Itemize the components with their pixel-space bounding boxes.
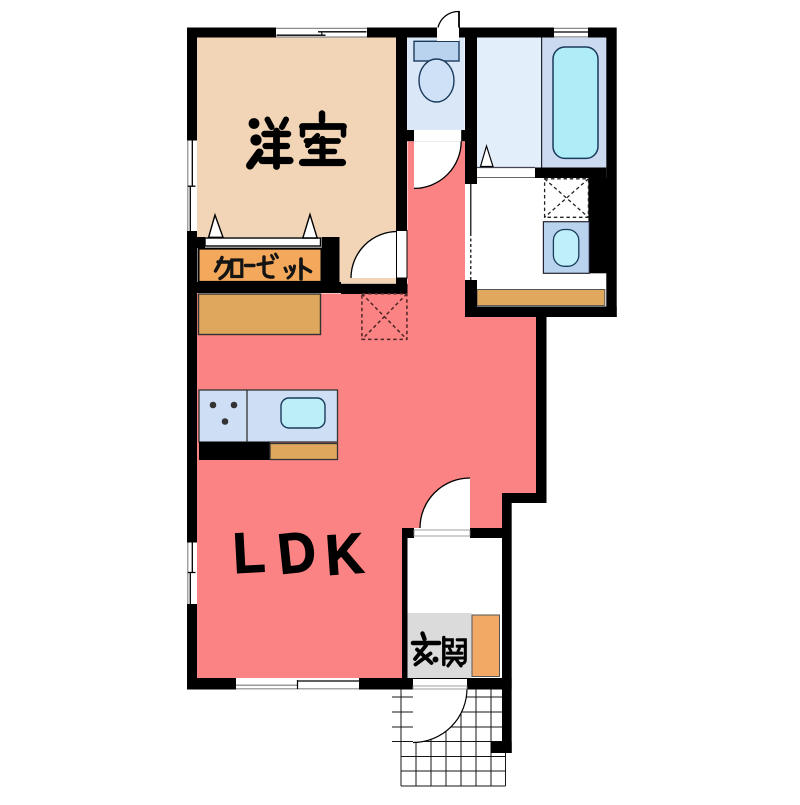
svg-text:D: D <box>275 518 319 586</box>
svg-text:L: L <box>231 519 266 585</box>
svg-text:K: K <box>323 520 366 587</box>
